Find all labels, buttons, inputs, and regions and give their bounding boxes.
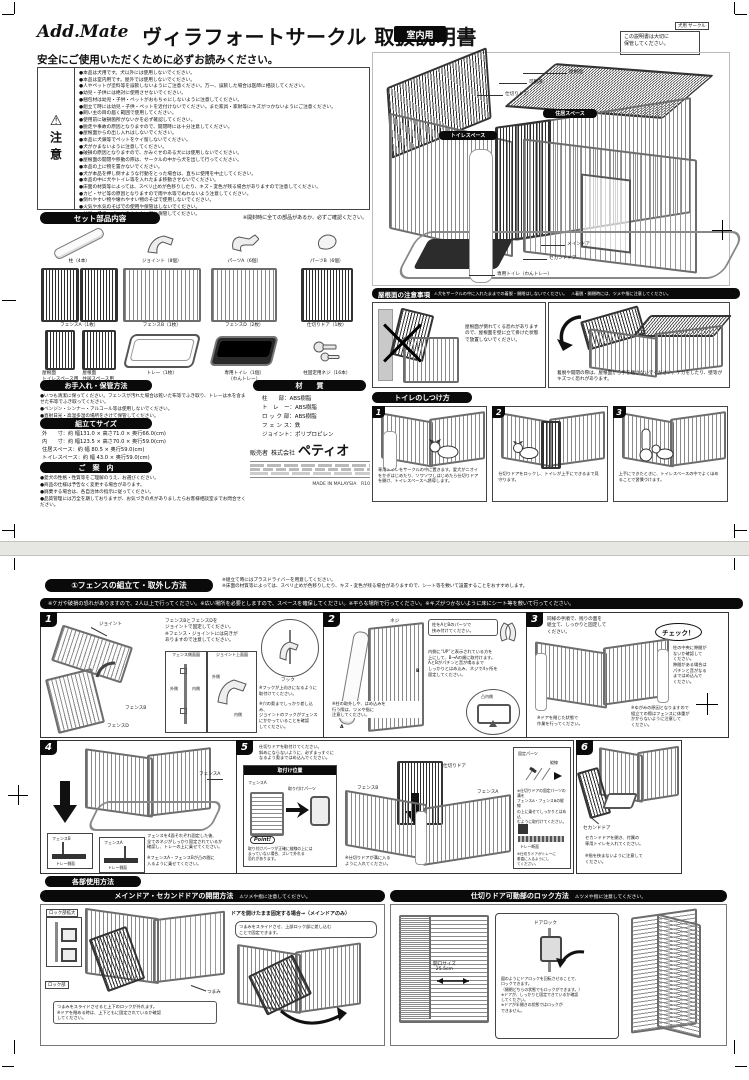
caution-item: ●飼い主の目の届く範囲で使用してください。 [79,111,365,117]
material-list: 柱 部：ABS樹脂ト レ ー：ABS樹脂ロ ッ ク 部：ABS樹脂フ ェ ン ス… [262,395,366,441]
manual-sheet: Add.Mate ヴィラフォートサークル 取扱説明書 室内用 犬用 サークル こ… [0,0,749,1080]
label-toilet-space: トイレスペース [439,131,497,140]
hook-detail-circle [261,619,319,677]
part-post: 柱（4本） [38,228,121,264]
opening-size-label: 開口サイズ 25.5cm [433,961,456,972]
brand-logo: Add.Mate [37,22,137,46]
step-1: 1 ジョイント フェンスB フェンスD フェンスBとフェンスDを ジョイントで固… [40,612,325,738]
caution-item: ●倒れやすい物や壊れやすい物のそばで使用しないでください。 [79,198,365,204]
x-mark [381,321,425,365]
open-fix-title: ドアを開けたまま固定する場合→（メインドアのみ） [231,911,350,918]
step1-note2: ※穴の奥までしっかり差し込み、 ジョイントのフックがフェンス にかかっていること… [259,701,321,729]
swing-arrow-icon [277,1005,347,1031]
clamp-detail-icon [494,617,522,645]
parts-note: ※開封時に全ての部品があるか、必ずご確認ください。 [185,215,367,222]
label-main-door: メインドア [567,241,590,247]
part-joint: ジョイント（8個） [121,228,204,264]
caution-item: ●本品に犬鎖等でペットをケイ留しないでください。 [79,138,365,144]
seller-company: 株式会社 [271,448,295,457]
size-list: 外 寸：約 幅131.0 × 高さ71.0 × 奥行66.0(cm)内 寸：約 … [42,431,248,464]
label-second-door6: セカンドドア [583,825,611,831]
caution-list: ●本品は犬用です。犬以外には使用しないでください。●本品は室内用です。屋外では使… [75,68,369,209]
label-fence-a5: フェンスA [477,789,498,795]
usage-door-caution: ⚠ツメや指に注意してください。 [239,893,310,900]
fence-b-icon [123,268,201,322]
label-second-door: セカンドドア [549,255,577,261]
info-list: ●愛犬の性格・性質等をご理解のうえ、お選びください。●商品の仕様は予告なく変更す… [40,476,246,510]
seller-brand: ペティオ [298,440,349,459]
seller-contact-lines [250,461,370,478]
assembly-header: ①フェンスの組立て・取外し方法 [45,579,213,592]
step6-text: セカンドドアを開き、付属の 専用トイレを入れてください。 [585,835,675,846]
label-a: A [340,725,344,730]
label-roof: 屋根面 [569,69,583,75]
toilet-step-3: 3 上手にできたときに、トイレスペースの中でよくほめることで習慣づけます。 [613,406,728,502]
part-fence-b: フェンスB（1枚） [121,268,204,328]
caution-item: ●火気や水気のそばでの使用や保管はしないでください。 [79,205,365,211]
doorlock-inset: ドアロック 図のようにドアロックを回転させることで、 ロックできます。 （開閉ど… [495,913,619,1039]
material-header: 材 質 [253,380,366,391]
material-row: 柱 部：ABS樹脂 [262,395,366,404]
info-item: ●愛犬の性格・性質等をご理解のうえ、お選びください。 [40,476,246,482]
lock-zoom-label: ロック部拡大 [46,909,78,917]
toilet-training-steps: 1 専用トイレをサークルの中に置きます。愛犬がニオイをかぎはじめたり、ソワソワし… [372,406,728,502]
cage-right-graphic [655,325,723,375]
size-row: 内 寸：約 幅123.5 × 高さ70.0 × 奥行59.0(cm) [42,439,248,447]
step-5: 5 仕切りドアを取付けてください。 斜めにならないように、必ずまっすぐに なるよ… [236,740,574,874]
caution-box: ⚠ 注意 ●本品は犬用です。犬以外には使用しないでください。●本品は室内用です。… [37,67,370,210]
roof-caution-header: 屋根面の注意事項 [378,289,430,299]
info-header: ご 案 内 [40,462,152,473]
roof-caution-note1: ⚠犬をサークルの中に入れたままでの着脱・開閉はしないでください。 [434,291,567,297]
front-pillar [469,149,493,283]
page-1: Add.Mate ヴィラフォートサークル 取扱説明書 室内用 犬用 サークル こ… [0,0,749,541]
step4-text: フェンスを4面それぞれ固定した後、 全てのネジがしっかり固定されているか 確認し… [147,833,235,850]
pillar-top-circle: 凸内側 [466,689,520,735]
label-b: B [416,669,420,674]
parts-grid: 柱（4本） ジョイント（8個） パーツA（6個） [38,228,368,388]
warning-triangle-icon: ⚠ [50,113,63,129]
width-arrow-icon [431,977,475,985]
part-b-icon [314,232,340,254]
joint-icon [144,230,180,256]
fix-part-inset: 固定パーツ 縦線 ※仕切りドアの固定パーツの溝を フェンスA・フェンスBの縦線 … [513,747,571,869]
seller-label: 販売者 [250,448,268,457]
step2-note: ※柱の取外しや、はめ込みを 行う際は、ツメや指に 注意してください。 [332,701,422,718]
label-toilet: 専用トイレ（わんトレー） [497,271,552,277]
care-item: ●ベンジン・シンナー・アルコール等は使用しないでください。 [40,407,246,413]
material-row: ト レ ー：ABS樹脂 [262,404,366,413]
caution-item: ●本品の中に犬やトイレ等を入れたまま移動させないでください。 [79,178,365,184]
caution-item: ●本品の上に物を置かないでください。 [79,165,365,171]
caution-side: ⚠ 注意 [38,68,75,209]
size-row: 住居スペース：約 幅 80.5 × 奥行59.0(cm) [42,447,248,455]
usage-door-section: メインドア・セカンドドアの開閉方法 ⚠ツメや指に注意してください。 ロック部拡大… [40,890,385,1046]
overview-diagram: 屋根面 可動部 仕切りドア 住居スペース トイレスペース メインドア セカンドド… [372,52,730,286]
step5-note3: ※仕切りドアがトレーに 垂直に入るようにし てください。 [517,852,567,867]
usage-door-title: メインドア・セカンドドアの開閉方法 [114,891,233,901]
screws-icon [310,338,344,364]
caution-item: ●カビ・サビ等の原因となりますので雨や水等でぬれないよう注意してください。 [79,192,365,198]
caution-item: ●屋根面からの出し入れはしないでください。 [79,131,365,137]
page-2: ①フェンスの組立て・取外し方法 ※組立て時にはプラスドライバーを用意してください… [0,554,749,1080]
step-2: 2 ネジ A B 柱をAとBのパーツで 挟み付けてください。 内側に“UP”と表… [323,612,528,738]
dog-circle-tag: 犬用 サークル [675,22,709,30]
care-item: ●いつも清潔に保ってください。フェンスが汚れた場合は乾いた布等でふき取り、トレー… [40,394,246,407]
step1-text: フェンスBとフェンスDを ジョイントで固定してください。 ※フェンス・ジョイント… [165,619,265,644]
label-divider: 仕切りドア [505,91,528,97]
point-badge: Point! [250,836,275,844]
down-arrow-icon [53,781,77,825]
part-fence-a: フェンスA（1枚） [38,268,121,328]
divider-caption: 図のようにドアロックを回転させることで、 ロックできます。 （開閉どちらの状態で… [501,976,613,1013]
caution-item: ●組立て時には幼児・子供・ペットを近付けないでください。また家具・家財等にキズが… [79,105,365,111]
step3-text: 同様の手順で、残りの面を 組立て、しっかりと固定して ください。 [547,617,639,636]
label-fence-b5: フェンスB [357,785,378,791]
caution-item: ●使用前に破損箇所がないかを必ず確認してください。 [79,118,365,124]
size-row: 外 寸：約 幅131.0 × 高さ71.0 × 奥行66.0(cm) [42,431,248,439]
fence-a-icon [80,268,118,322]
step4-note: ※フェンスA・フェンスBが凸の間に 入るように乗せてください。 [147,855,235,866]
tray-icon [123,334,201,368]
label-movable: 可動部 [529,79,543,85]
info-item: ●品質管理には万全を期しておりますが、お気づきの点がありましたらお客様相談室まで… [40,497,246,510]
caution-label: 注意 [48,131,65,165]
part-b: パーツB（6個） [286,228,369,264]
caution-item: ●本品は室内用です。屋外では使用しないでください。 [79,78,365,84]
caution-item: ●犬が本品を押し倒すような行動をとった場合は、直ちに使用を中止してください。 [79,172,365,178]
part-a-icon [229,231,259,255]
toilet-in-cage [413,239,513,269]
step5-note1: ※仕切りドアの固定パーツの溝を フェンスA・フェンスBの縦線 の上に乗せてしっか… [517,788,567,824]
toilet-training-header: トイレのしつけ方 [372,392,472,403]
caution-item: ●床面の材質等によっては、スベリ止めが色移りしたり、キズ・変色が残る場合がありま… [79,185,365,191]
step3-check-text: 柱の中央に隙間が ないか確認して ください。 隙間がある場合は パチンと音がなる… [673,645,725,685]
material-row: フ ェ ン ス：鉄 [262,422,366,431]
origin-note: MADE IN MALAYSIA R10 [250,481,370,487]
caution-item: ●犬がかまないように注意してください。 [79,145,365,151]
tray-inset-1: フェンスB トレー側面 [47,833,93,869]
roof-caution-box2-text: 着脱や開閉の際は、屋根面から手を離さないでください。ケガをしたり、壁等がキズつく… [557,371,725,384]
tray-inset-2: フェンスA トレー側面 [99,837,145,873]
step3-note1: ※ゆがみの原因となりますので 組立ての際はフェンスに体重が かからないように注意… [631,705,723,728]
doorlock-label: ドアロック [534,920,557,926]
seller-block: 販売者 株式会社 ペティオ MADE IN MALAYSIA R10 [250,440,370,487]
assembly-notes: ※組立て時にはプラスドライバーを用意してください。 ※床面の材質等によっては、ス… [222,578,702,591]
fence-side-inset: フェンス側面図 外側 内側 [165,651,207,733]
indoor-use-badge: 室内用 [394,26,446,42]
mount-position-inset: 取付け位置 フェンスA 取り付けパーツ Point! 取り付けパーツが正確に縦線… [243,765,337,867]
label-screw: ネジ [390,618,399,624]
part-divider-door: 仕切りドア（1枚） [286,268,369,328]
toilet-tray-graphic [602,793,638,809]
usage-divider-section: 仕切りドア可動部のロック方法 ⚠ツメや指に注意してください。 開口サイズ 25.… [390,890,727,1046]
divider-door-icon [301,268,353,322]
size-header: 組立てサイズ [40,418,152,429]
joint-top-inset: ジョイント上面図 外側 内側 [207,651,257,733]
step-6: 6 セカンドドア セカンドドアを開き、付属の 専用トイレを入れてください。 ※指… [576,740,682,874]
toilet-step-1: 1 専用トイレをサークルの中に置きます。愛犬がニオイをかぎはじめたり、ソワソワし… [372,406,487,502]
label-fence-a4: フェンスA [199,771,220,777]
roof-caution-note2: ⚠着脱・開閉時には、ツメや指に注意してください。 [571,291,671,297]
step6-note: ※指を挟まないように注意して ください。 [585,853,675,864]
fence-d-icon [211,268,277,322]
toilet-step-2: 2 仕切りドアをロックし、トイレが上手にできるまで見守ります。 [492,406,607,502]
caution-item: ●人やペットが塗料等を誤飲しないようにご注意ください。万一、誤飲した場合は医師に… [79,84,365,90]
post-icon [53,226,106,260]
rotate-arrow-icon [555,311,585,355]
assembly-note2: ※床面の材質等によっては、スベリ止めが色移りしたり、キズ・変色が残る場合がありま… [222,584,702,590]
caution-item: ●梱包材は幼児・子供・ペットがおもちゃにしないように注意してください。 [79,98,365,104]
step3-note2: ※ドアを閉じた状態で 作業を行ってください。 [537,715,607,726]
parts-header: セット部品内容 [40,212,160,224]
step-4: 4 フェンスA フェンスB トレー側面 フェンスA トレー側面 フェンスを4面そ… [40,740,238,874]
usage-header: 各部使用方法 [45,876,141,887]
rotate-lock-arrow [554,948,588,974]
assembly-warning-bar: ※ケガや破損の恐れがありますので、2人以上で行ってください。※広い場所を必要とし… [40,598,743,609]
care-header: お手入れ・保管方法 [40,380,152,391]
part-a: パーツA（6個） [203,228,286,264]
label-hook: フック [281,677,295,683]
usage-divider-caution: ⚠ツメや指に注意してください。 [575,893,646,900]
step2-text1: 柱をAとBのパーツで 挟み付けてください。 [428,619,498,636]
roof-living-icon [82,330,116,370]
caution-item: ●本品は犬用です。犬以外には使用しないでください。 [79,71,365,77]
label-joint: ジョイント [99,621,122,627]
toilet-icon [210,336,279,366]
lock-label: ロック部 [45,981,69,989]
step2-text2: 内側に“UP”と表示されている方を 上にして、B→Aの順に取付けます。 AとBが… [428,649,522,677]
info-item: ●廃棄する場合は、各自治体の指示に従ってください。 [40,490,246,496]
roof-caution-bar: 屋根面の注意事項 ⚠犬をサークルの中に入れたままでの着脱・開閉はしないでください… [372,288,740,299]
label-fence-d: フェンスD [107,723,129,729]
step5-text: 仕切りドアを取付けてください。 斜めにならないように、必ずまっすぐに なるよう奥… [259,744,369,761]
part-fence-d: フェンスD（2枚） [203,268,286,328]
knob-label: つまみ [207,989,221,995]
point-text: 取り付けパーツが正確に縦線の上には まっていない場合、ズレて外れる 恐れがありま… [248,846,332,861]
label-living-space: 住居スペース [543,109,597,118]
fence-a-icon [41,268,79,322]
open-fix-bubble: つまみをスライドさせ、上部ロック部に差し込む ことで固定できます。 [235,921,377,938]
label-fence-b: フェンスB [125,705,146,711]
info-item: ●商品の仕様は予告なく変更する場合があります。 [40,483,246,489]
roof-caution-box1-text: 屋根面が倒れてくる恐れがありますので、屋根面を壁に立て掛けた状態で放置しないでく… [465,325,541,344]
label-divider-door: 仕切りドア [443,763,466,769]
step-3: 3 同様の手順で、残りの面を 組立て、しっかりと固定して ください。 チェック！… [526,612,729,738]
material-row: ジョイント：ポリプロピレン [262,431,366,440]
step1-note1: ※フックが上向きになるように 取付けてください。 [259,685,321,696]
door-caption: つまみをスライドさせると上下のロックが外れます。 ※ドアを閉める時は、上下ともに… [53,1001,217,1024]
roof-caution-box2: 着脱や開閉の際は、屋根面から手を離さないでください。ケガをしたり、壁等がキズつく… [548,302,730,388]
caution-item: ●幼児・子供には絶対に使用させないでください。 [79,91,365,97]
caution-item: ●破損の原因となりますので、かみぐせのある犬には使用しないでください。 [79,151,365,157]
material-row: ロ ッ ク 部：ABS樹脂 [262,413,366,422]
roof-toilet-icon [45,330,75,370]
caution-item: ●脱走や事故の原因となりますので、開閉時には十分注意してください。 [79,125,365,131]
roof-caution-box1: 屋根面が倒れてくる恐れがありますので、屋根面を壁に立て掛けた状態で放置しないでく… [372,302,546,388]
caution-item: ●屋根面の開閉や移動の際は、サークルの中から犬を出して行ってください。 [79,158,365,164]
step5-note2: ※仕切りドアが溝に入る ように入れてください。 [345,855,445,866]
lock-zoom-inset [46,917,82,967]
usage-divider-title: 仕切りドア可動部のロック方法 [471,891,569,901]
